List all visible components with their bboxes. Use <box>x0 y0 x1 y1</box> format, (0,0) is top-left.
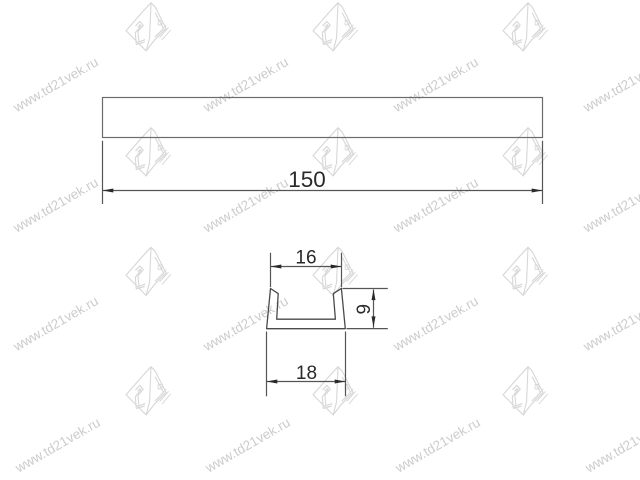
svg-text:150: 150 <box>288 167 326 192</box>
svg-text:18: 18 <box>296 363 317 384</box>
svg-text:16: 16 <box>295 247 316 268</box>
svg-text:9: 9 <box>354 304 375 315</box>
